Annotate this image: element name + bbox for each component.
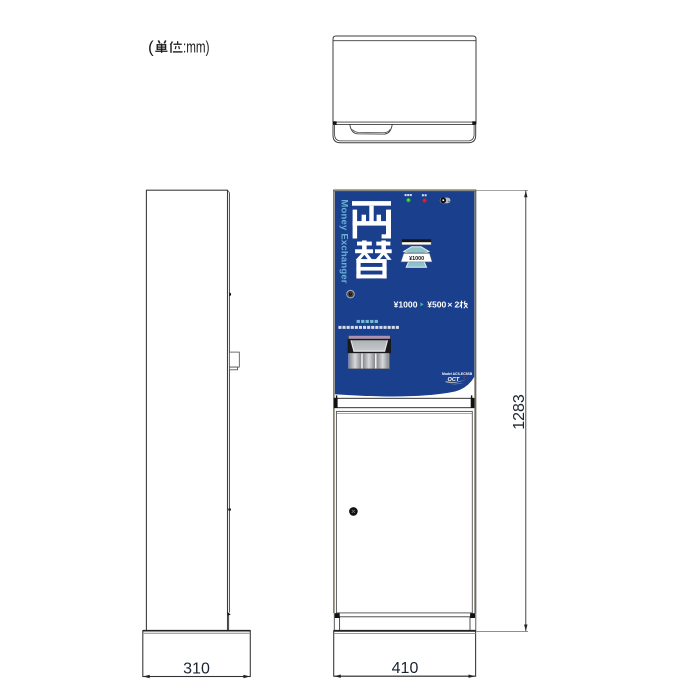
svg-text:OCT: OCT <box>448 377 460 383</box>
svg-text:Money Exchanger: Money Exchanger <box>339 199 350 283</box>
svg-text:×: × <box>447 300 452 310</box>
svg-text:Model ACS-EC5SB: Model ACS-EC5SB <box>442 372 473 376</box>
svg-text:¥1000: ¥1000 <box>409 256 424 262</box>
svg-text:¥1000: ¥1000 <box>394 300 418 310</box>
svg-text::mm): :mm) <box>183 38 210 57</box>
svg-text:¥500: ¥500 <box>427 300 446 310</box>
svg-text:(: ( <box>148 38 154 57</box>
svg-text:410: 410 <box>392 660 419 677</box>
svg-text:2: 2 <box>455 300 460 310</box>
svg-text:310: 310 <box>183 661 210 678</box>
svg-text:1283: 1283 <box>511 394 528 430</box>
